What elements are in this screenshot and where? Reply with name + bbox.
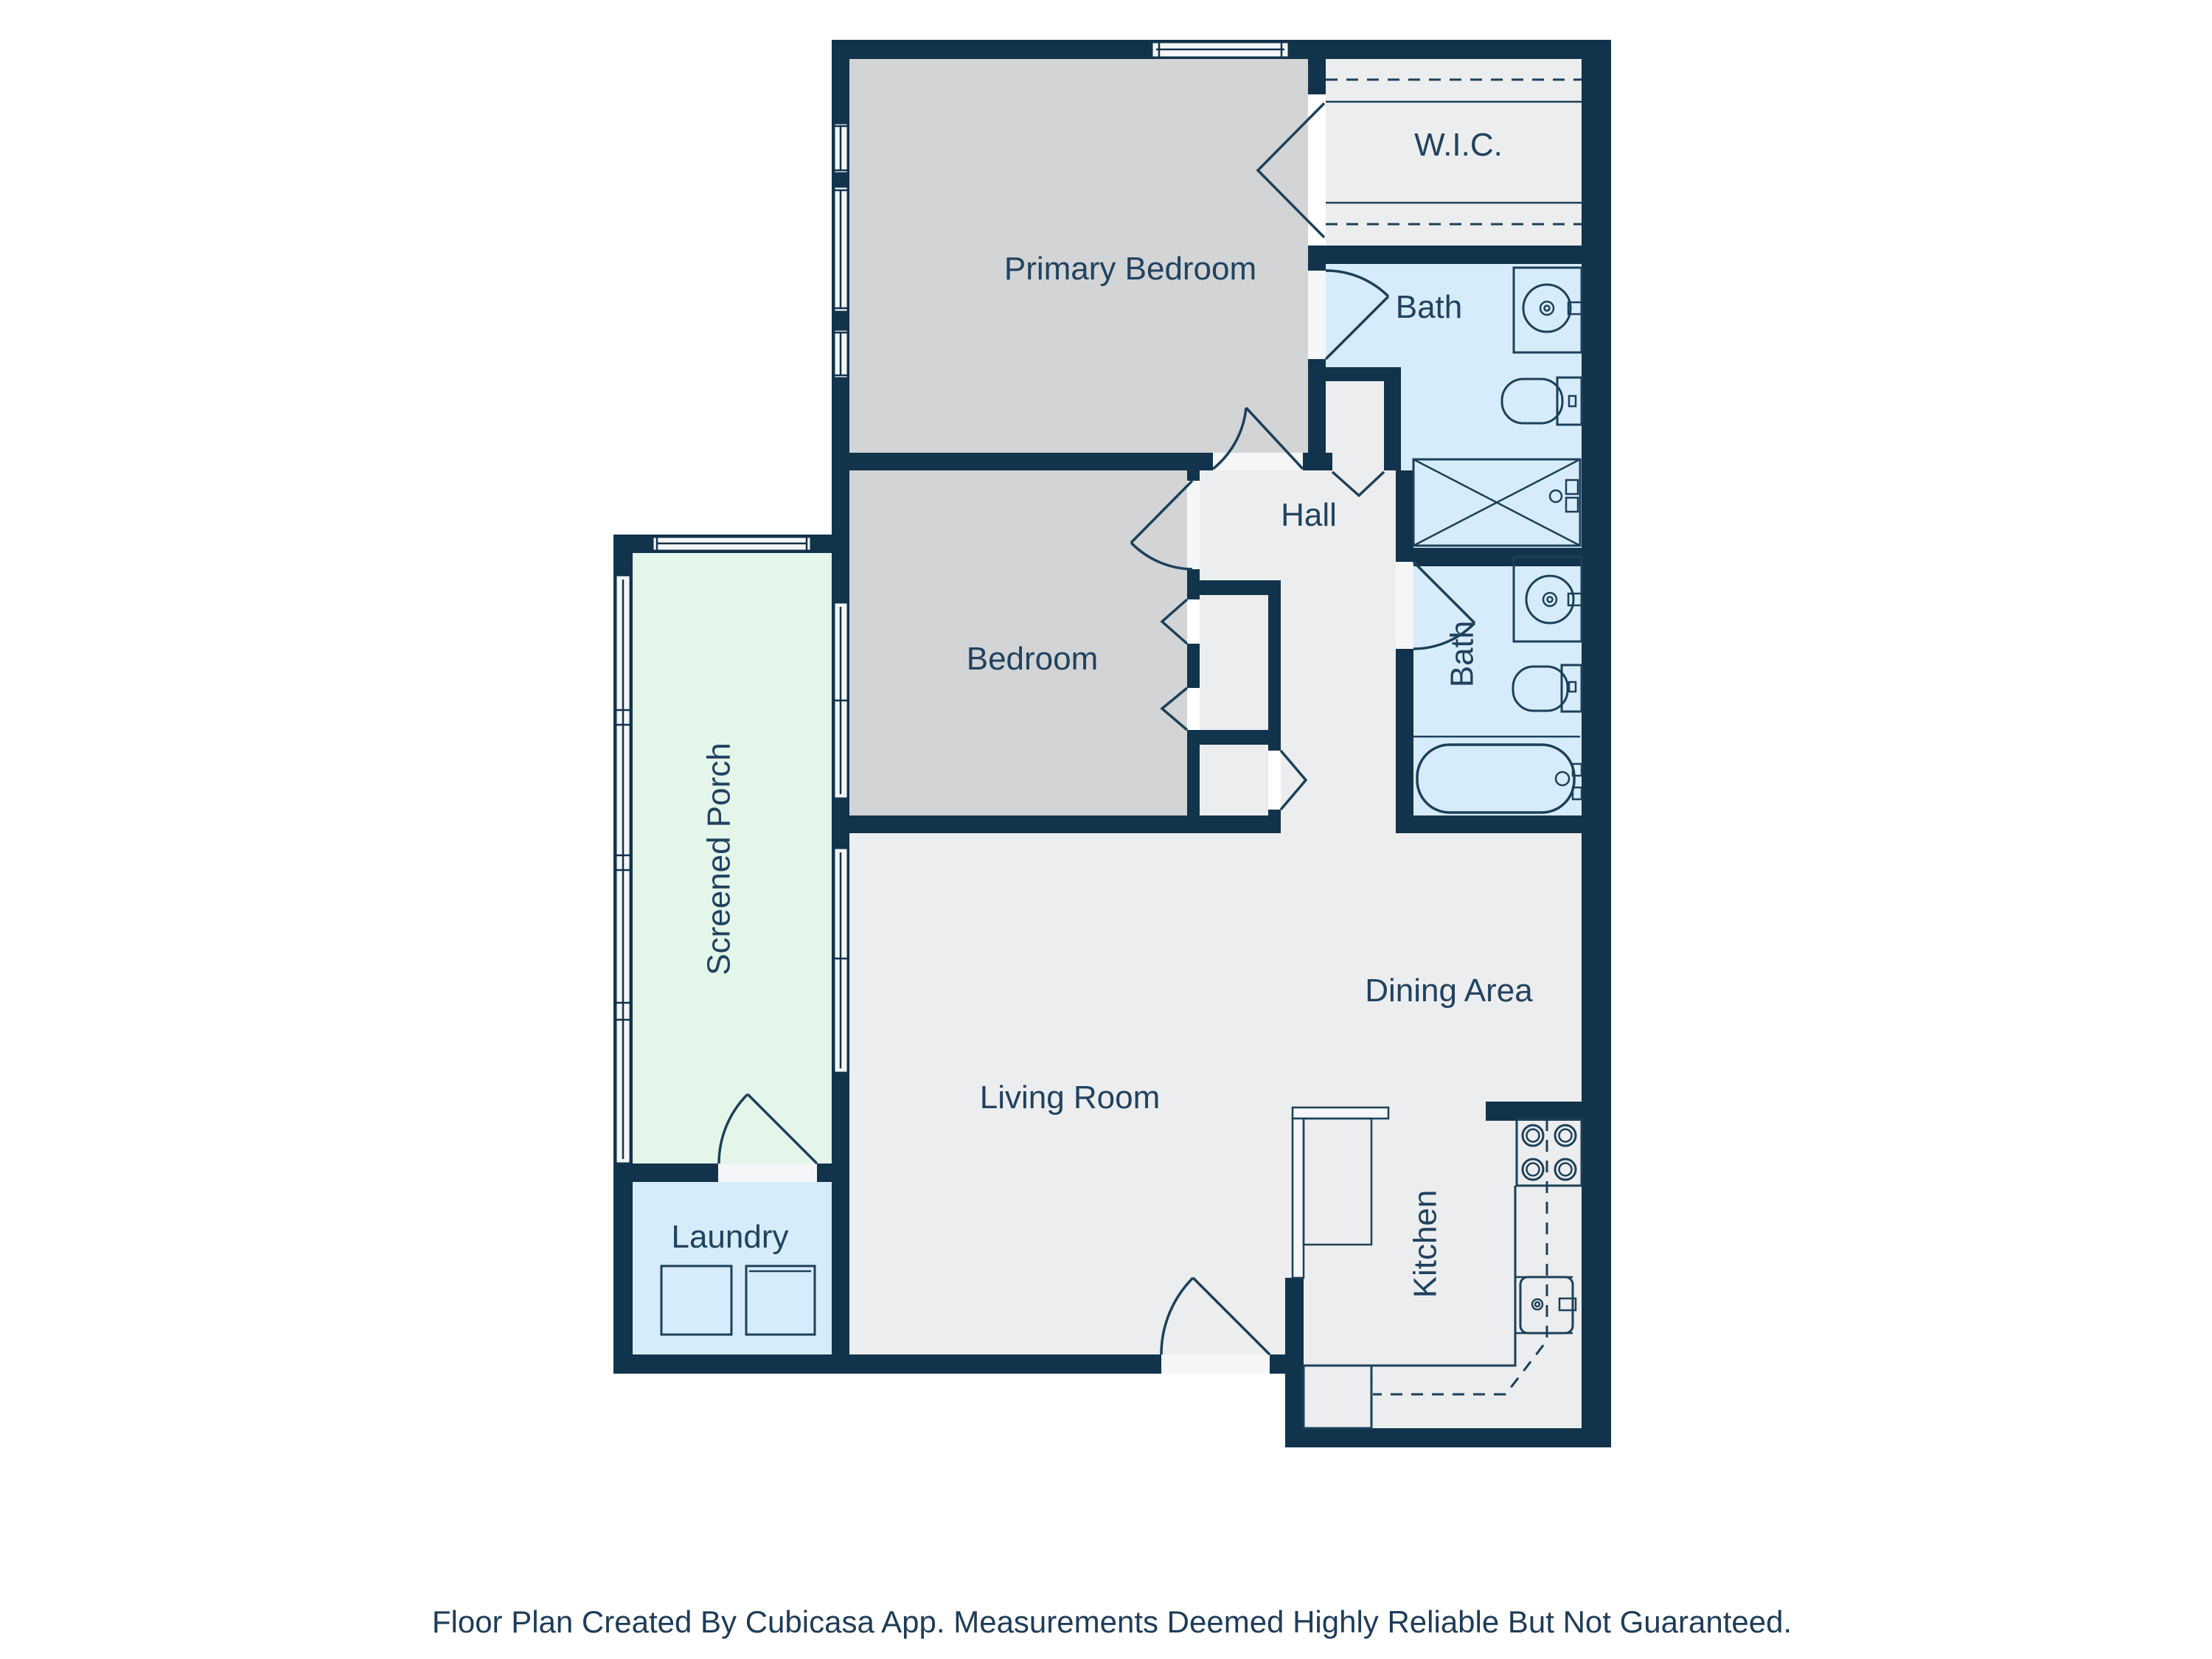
floor-plan: Primary Bedroom W.I.C. Bath Hall Bedroom… — [0, 0, 2212, 1659]
window-porch-west — [616, 575, 630, 1164]
window-porch-top — [653, 537, 811, 551]
window-living-porch — [834, 848, 848, 1073]
room-label-dining-area: Dining Area — [1365, 973, 1533, 1009]
window-primary-west-1 — [834, 123, 848, 173]
room-label-hall: Hall — [1281, 497, 1337, 533]
room-label-primary-bedroom: Primary Bedroom — [1004, 251, 1256, 287]
room-label-laundry: Laundry — [671, 1219, 788, 1255]
room-label-living-room: Living Room — [980, 1079, 1161, 1116]
window-primary-west-2 — [834, 187, 848, 312]
room-label-bath-right: Bath — [1444, 621, 1481, 688]
footer-disclaimer: Floor Plan Created By Cubicasa App. Meas… — [432, 1604, 1792, 1639]
hall-notch-floor — [1326, 381, 1384, 453]
room-label-screened-porch: Screened Porch — [701, 742, 737, 975]
window-primary-west-3 — [834, 330, 848, 378]
hall-passage-floor — [1332, 453, 1384, 470]
bath-top-floor-lower — [1401, 367, 1582, 548]
room-label-bedroom: Bedroom — [967, 641, 1099, 677]
window-top — [1152, 42, 1289, 58]
closet-lower-floor — [1200, 745, 1268, 815]
floor-plan-page: Primary Bedroom W.I.C. Bath Hall Bedroom… — [0, 0, 2212, 1659]
closet-upper-floor — [1200, 595, 1268, 730]
room-label-bath-top: Bath — [1396, 289, 1463, 325]
window-bedroom-porch — [834, 602, 848, 799]
living-dining-floor — [849, 833, 1582, 1354]
room-label-kitchen: Kitchen — [1408, 1190, 1444, 1298]
room-label-wic: W.I.C. — [1414, 127, 1503, 163]
